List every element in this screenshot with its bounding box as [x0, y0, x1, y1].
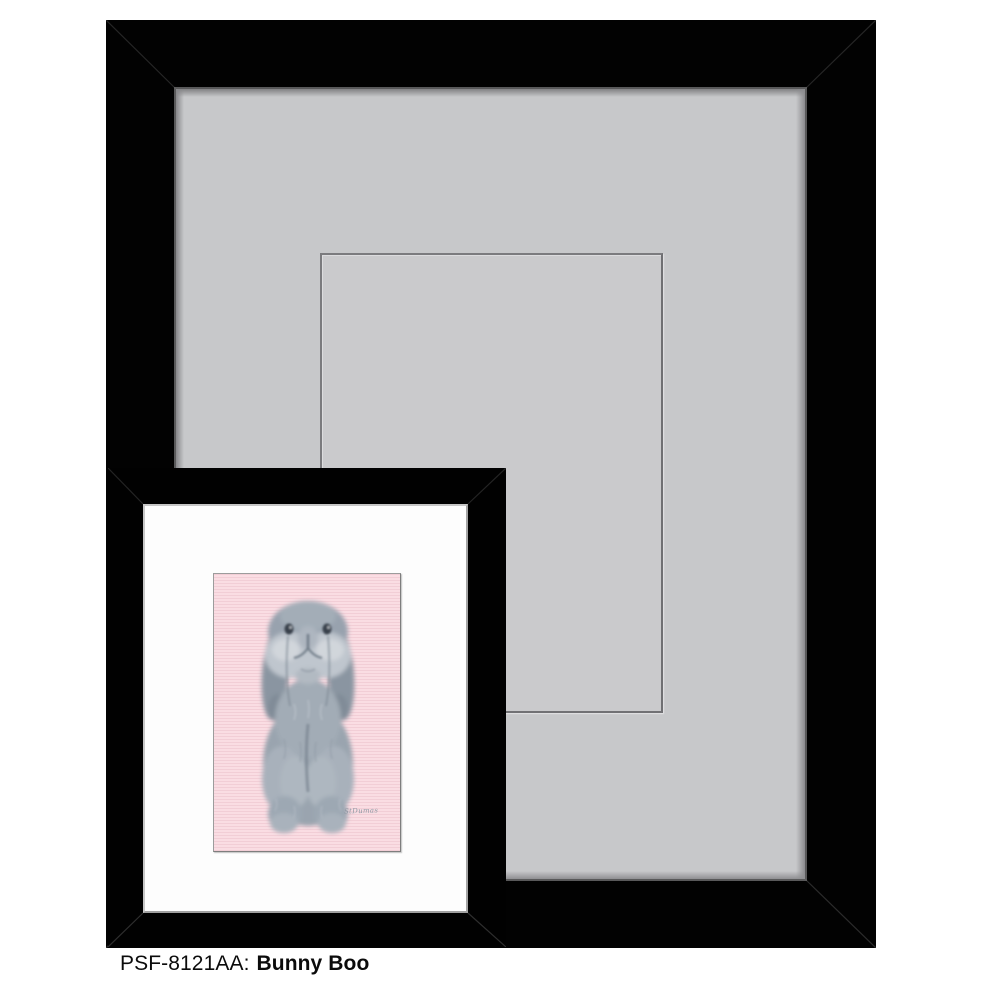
- product-sku: PSF-8121AA:: [120, 952, 250, 975]
- mat-inner-shadow-top: [176, 89, 805, 97]
- bunny-artwork: StDumas: [213, 573, 401, 852]
- product-mockup-image: StDumas PSF-8121AA:Bunny Boo: [0, 0, 984, 984]
- small-frame-mat: StDumas: [143, 504, 468, 913]
- product-title: Bunny Boo: [257, 952, 370, 975]
- artist-signature: StDumas: [344, 806, 378, 815]
- product-caption: PSF-8121AA:Bunny Boo: [120, 952, 369, 976]
- small-picture-frame: StDumas: [108, 468, 506, 947]
- mat-inner-shadow-right: [796, 89, 805, 879]
